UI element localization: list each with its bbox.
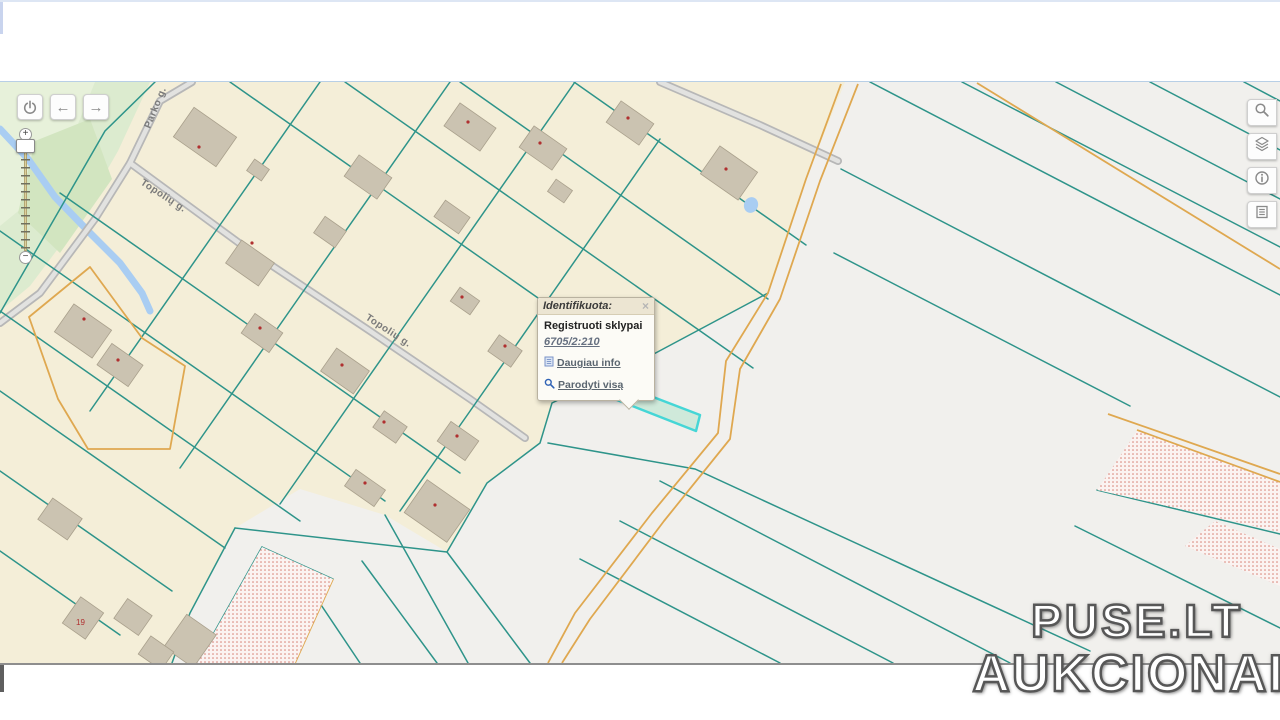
magnifier-icon xyxy=(544,376,555,394)
more-info-row: Daugiau info xyxy=(544,354,648,372)
pan-forward-button[interactable]: → xyxy=(83,94,109,120)
info-button[interactable] xyxy=(1247,167,1277,194)
zoom-out-button[interactable]: − xyxy=(19,251,32,264)
watermark-line2: AUKCIONAI xyxy=(972,644,1280,704)
app-window: 19 Parko g. Topolių g. Topolių g. PUSE.L… xyxy=(0,0,1280,720)
top-bar-notch xyxy=(0,2,3,34)
zoom-slider[interactable]: + − xyxy=(14,125,38,267)
search-icon xyxy=(1254,102,1270,123)
top-bar xyxy=(0,0,1280,81)
parcel-code-link[interactable]: 6705/2:210 xyxy=(544,336,600,348)
layers-icon xyxy=(1254,136,1270,157)
close-icon[interactable]: × xyxy=(642,301,649,311)
page-icon xyxy=(544,354,554,372)
show-all-row: Parodyti visą xyxy=(544,376,648,394)
search-button[interactable] xyxy=(1247,99,1277,126)
legend-icon xyxy=(1254,204,1270,225)
layers-button[interactable] xyxy=(1247,133,1277,160)
power-button[interactable] xyxy=(17,94,43,120)
zoom-slider-ticks xyxy=(21,151,30,249)
bottom-corner-tab xyxy=(0,665,4,692)
zoom-slider-handle[interactable] xyxy=(16,139,35,153)
arrow-right-icon: → xyxy=(89,99,104,116)
identify-popup-body: Registruoti sklypai 6705/2:210 Daugiau i… xyxy=(538,315,654,400)
more-info-link[interactable]: Daugiau info xyxy=(557,357,621,369)
identify-popup: Identifikuota: × Registruoti sklypai 670… xyxy=(537,297,655,401)
watermark-line1: PUSE.LT xyxy=(1031,594,1243,648)
power-icon xyxy=(22,99,38,115)
legend-button[interactable] xyxy=(1247,201,1277,228)
house-number-19: 19 xyxy=(76,618,85,627)
show-all-link[interactable]: Parodyti visą xyxy=(558,379,623,391)
info-icon xyxy=(1254,170,1270,191)
arrow-left-icon: ← xyxy=(56,99,71,116)
layer-name: Registruoti sklypai xyxy=(544,320,648,332)
identify-popup-header: Identifikuota: × xyxy=(538,298,654,315)
pan-back-button[interactable]: ← xyxy=(50,94,76,120)
identify-popup-title: Identifikuota: xyxy=(543,300,612,312)
